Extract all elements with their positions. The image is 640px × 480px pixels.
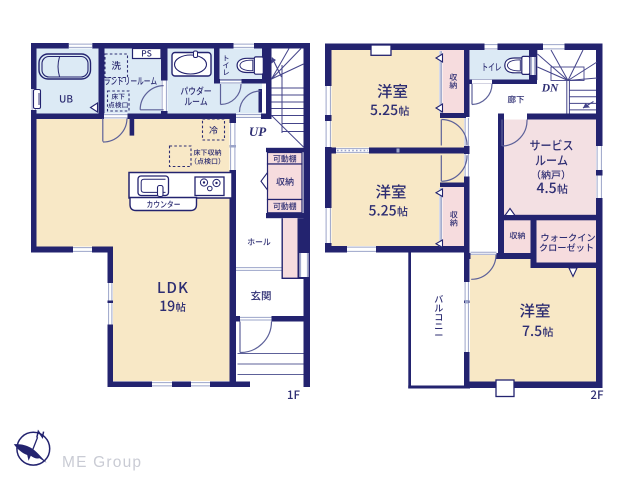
svg-text:DN: DN [541,83,559,95]
svg-text:ME Group: ME Group [62,454,142,471]
svg-text:UP: UP [249,124,267,139]
